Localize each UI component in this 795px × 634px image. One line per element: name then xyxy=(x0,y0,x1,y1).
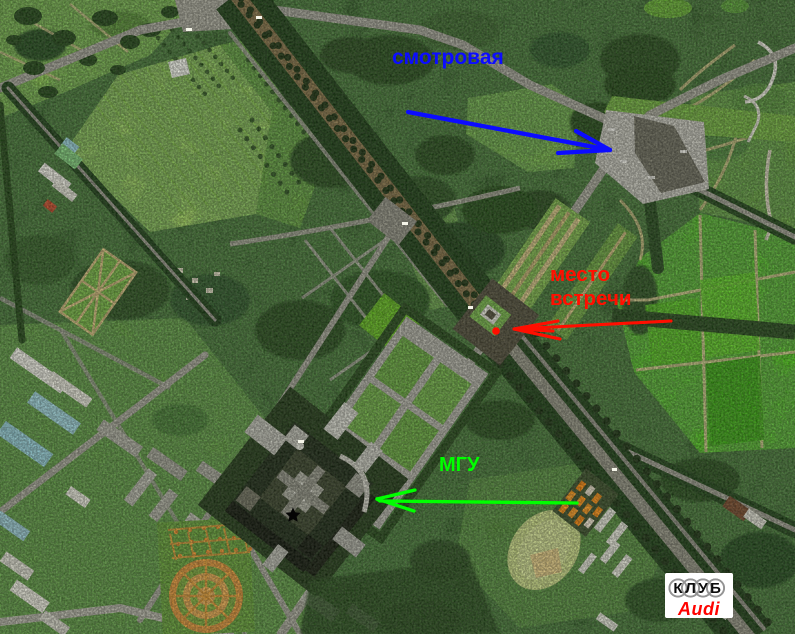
svg-text:место: место xyxy=(550,263,610,286)
svg-text:встречи: встречи xyxy=(550,287,631,310)
svg-text:Audi: Audi xyxy=(677,599,720,619)
svg-text:К: К xyxy=(673,580,683,597)
svg-text:Л: Л xyxy=(685,580,696,597)
svg-text:Б: Б xyxy=(710,580,721,597)
svg-text:смотровая: смотровая xyxy=(392,46,504,69)
svg-text:МГУ: МГУ xyxy=(439,454,480,476)
svg-text:У: У xyxy=(698,580,708,597)
